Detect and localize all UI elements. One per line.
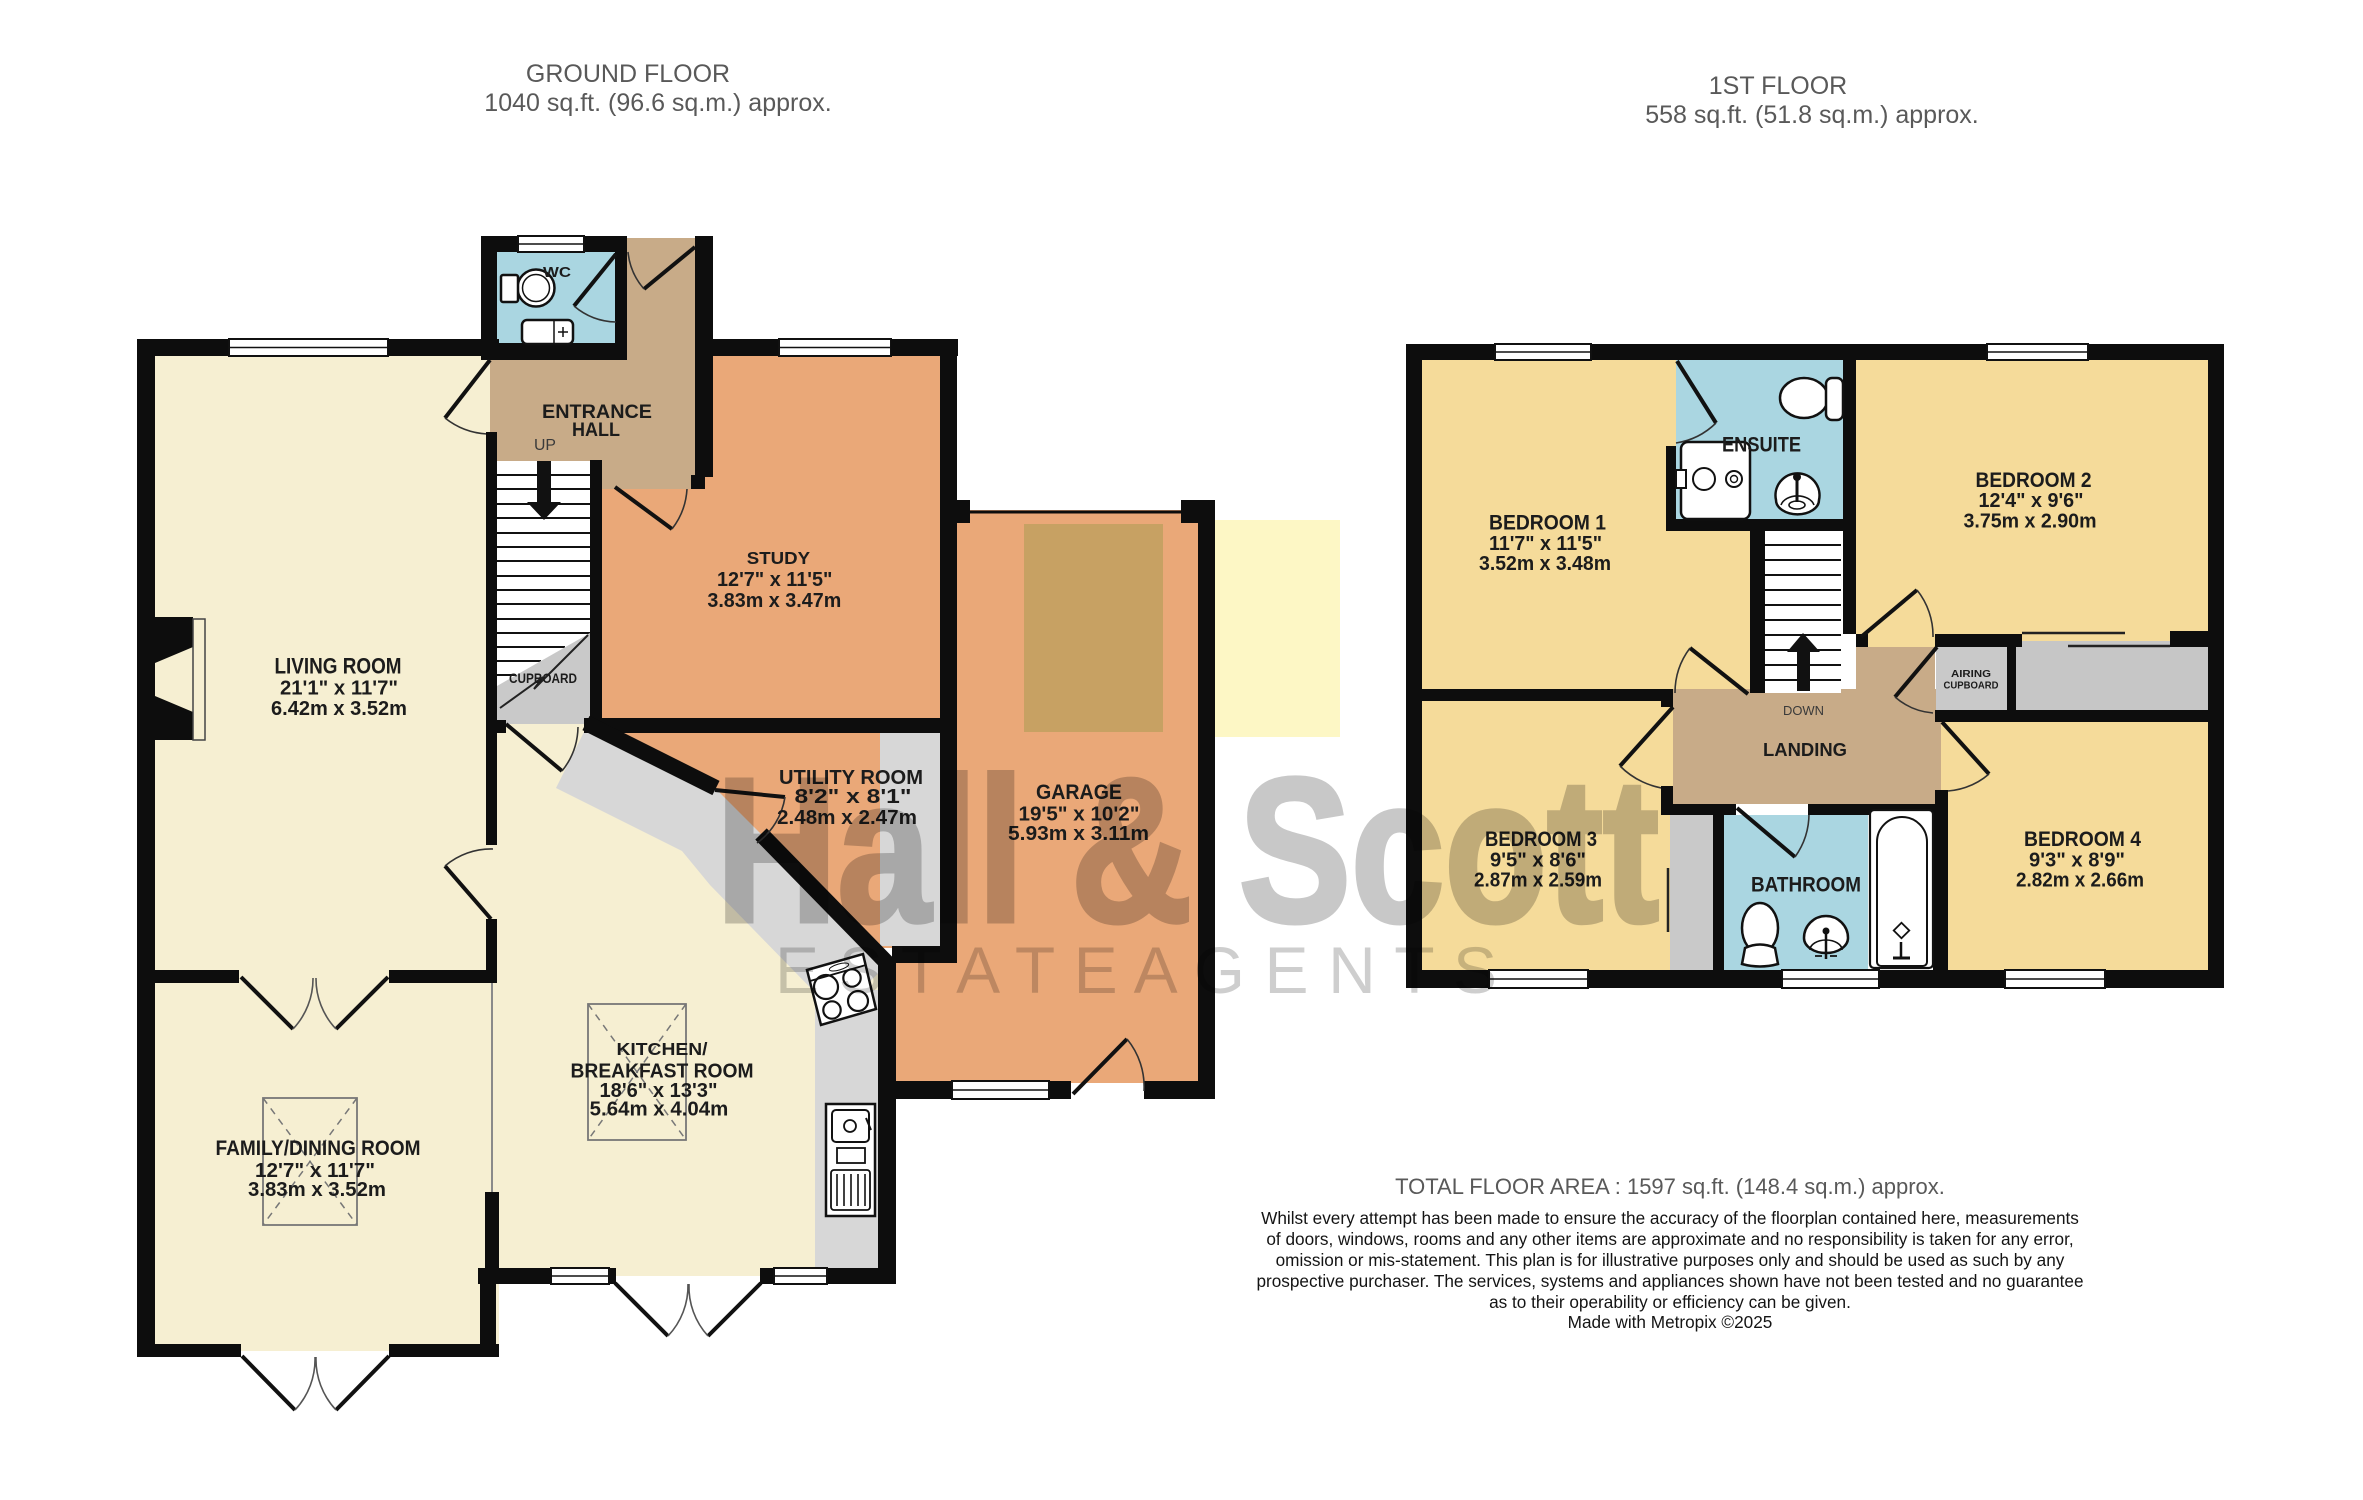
svg-text:prospective purchaser. The ser: prospective purchaser. The services, sys… <box>1256 1271 2083 1291</box>
svg-text:TOTAL FLOOR AREA : 1597 sq.ft.: TOTAL FLOOR AREA : 1597 sq.ft. (148.4 sq… <box>1395 1174 1945 1199</box>
svg-text:1ST FLOOR: 1ST FLOOR <box>1709 72 1847 100</box>
svg-text:6.42m x 3.52m: 6.42m x 3.52m <box>271 698 407 720</box>
svg-text:HALL: HALL <box>572 419 620 441</box>
svg-text:BEDROOM 1: BEDROOM 1 <box>1489 512 1606 535</box>
svg-text:BEDROOM 2: BEDROOM 2 <box>1976 469 2092 492</box>
svg-text:21'1" x 11'7": 21'1" x 11'7" <box>280 678 398 700</box>
svg-text:omission or mis-statement. Thi: omission or mis-statement. This plan is … <box>1276 1250 2065 1270</box>
svg-text:CUPBOARD: CUPBOARD <box>1944 680 1999 692</box>
svg-text:GROUND FLOOR: GROUND FLOOR <box>526 60 730 88</box>
svg-text:ENSUITE: ENSUITE <box>1722 434 1801 457</box>
svg-text:E S T A T E A G E N T S: E S T A T E A G E N T S <box>775 933 1497 1007</box>
svg-text:11'7" x 11'5": 11'7" x 11'5" <box>1489 533 1602 555</box>
svg-text:WC: WC <box>543 265 572 281</box>
svg-text:LANDING: LANDING <box>1763 740 1847 760</box>
svg-text:as to their operability or eff: as to their operability or efficiency ca… <box>1489 1292 1851 1312</box>
svg-text:12'4" x 9'6": 12'4" x 9'6" <box>1979 490 2084 512</box>
svg-text:DOWN: DOWN <box>1783 704 1824 718</box>
svg-text:3.75m x 2.90m: 3.75m x 2.90m <box>1964 511 2097 533</box>
svg-text:AIRING: AIRING <box>1951 668 1991 680</box>
svg-text:558 sq.ft. (51.8 sq.m.) appr: 558 sq.ft. (51.8 sq.m.) approx. <box>1645 101 1979 129</box>
svg-text:5.64m x 4.04m: 5.64m x 4.04m <box>590 1099 729 1121</box>
svg-text:9'3" x 8'9": 9'3" x 8'9" <box>2029 850 2125 872</box>
svg-text:Whilst every attempt has been: Whilst every attempt has been made to en… <box>1261 1208 2079 1228</box>
svg-text:Hall & Scott: Hall & Scott <box>716 736 1659 965</box>
svg-text:BATHROOM: BATHROOM <box>1751 874 1861 897</box>
svg-text:of doors, windows, rooms and a: of doors, windows, rooms and any other i… <box>1266 1229 2073 1249</box>
svg-text:BEDROOM 4: BEDROOM 4 <box>2024 828 2141 851</box>
svg-text:1040 sq.ft. (96.6 sq.m.) app: 1040 sq.ft. (96.6 sq.m.) approx. <box>484 89 831 117</box>
svg-text:Made with Metropix ©2025: Made with Metropix ©2025 <box>1568 1312 1773 1332</box>
svg-text:3.83m x 3.52m: 3.83m x 3.52m <box>248 1179 386 1201</box>
svg-text:FAMILY/DINING ROOM: FAMILY/DINING ROOM <box>216 1137 421 1160</box>
svg-text:12'7" x 11'5": 12'7" x 11'5" <box>717 569 832 591</box>
svg-text:STUDY: STUDY <box>747 548 811 568</box>
svg-text:KITCHEN/: KITCHEN/ <box>617 1039 708 1059</box>
svg-text:2.82m x 2.66m: 2.82m x 2.66m <box>2016 870 2144 892</box>
svg-text:3.52m x 3.48m: 3.52m x 3.48m <box>1479 553 1611 575</box>
svg-text:CUPBOARD: CUPBOARD <box>509 670 577 686</box>
svg-text:UP: UP <box>534 437 556 454</box>
svg-text:3.83m x 3.47m: 3.83m x 3.47m <box>707 590 841 612</box>
svg-text:LIVING ROOM: LIVING ROOM <box>275 654 402 679</box>
